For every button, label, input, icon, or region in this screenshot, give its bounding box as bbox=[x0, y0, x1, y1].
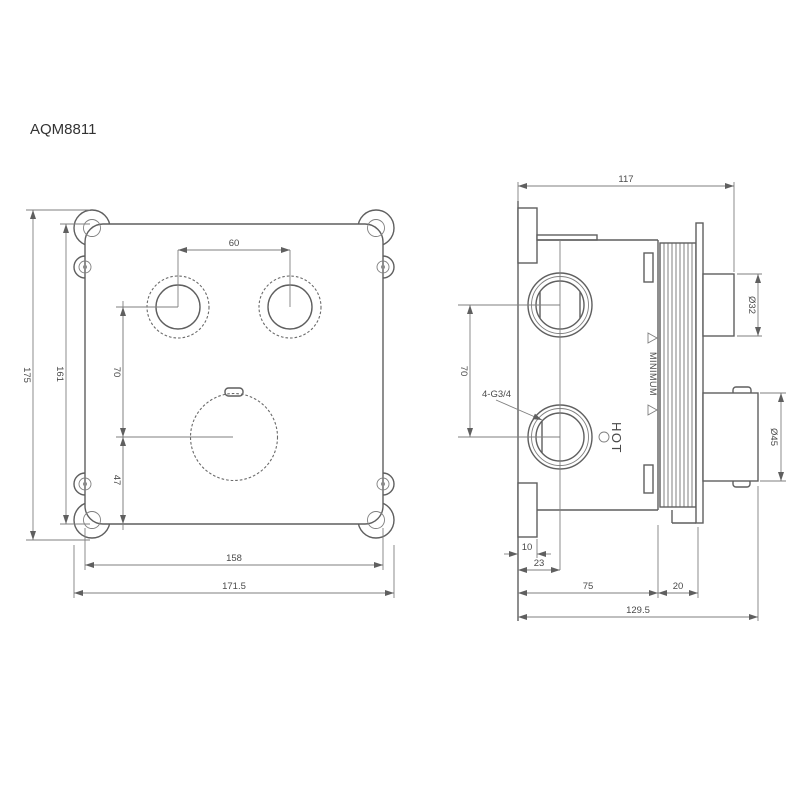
dim-label-23: 23 bbox=[534, 558, 545, 569]
dim-label-70: 70 bbox=[111, 367, 122, 378]
front-view: 60 70 47 161 175 bbox=[21, 210, 394, 598]
hot-indicator-dot bbox=[599, 432, 609, 442]
dim-label-10: 10 bbox=[522, 542, 533, 553]
dimension-large-knob-dia: Ø45 bbox=[760, 393, 786, 481]
dim-label-dia45: Ø45 bbox=[768, 428, 779, 446]
temp-knob-button bbox=[225, 388, 243, 396]
drawing-page: AQM8811 bbox=[0, 0, 800, 800]
thread-label: 4-G3/4 bbox=[482, 389, 511, 400]
technical-drawing: AQM8811 bbox=[0, 0, 800, 800]
dimension-overall-depth: 129.5 bbox=[518, 486, 758, 621]
dim-label-dia32: Ø32 bbox=[746, 296, 757, 314]
dim-label-75: 75 bbox=[583, 581, 594, 592]
dim-label-47: 47 bbox=[111, 475, 122, 486]
minimum-arrow-icon bbox=[648, 333, 657, 343]
dimension-port-center-depth: 23 bbox=[518, 558, 560, 570]
dimension-tab-depth: 10 bbox=[504, 539, 551, 558]
edge-lug-pin bbox=[83, 482, 87, 486]
dim-label-175: 175 bbox=[21, 367, 32, 383]
hot-label: HOT bbox=[609, 422, 624, 454]
small-knob-side bbox=[703, 274, 734, 336]
dimension-plate-width: 158 bbox=[85, 528, 383, 570]
temp-knob-side bbox=[703, 387, 758, 487]
mount-bracket-top bbox=[518, 208, 537, 263]
dim-label-70-side: 70 bbox=[458, 366, 469, 377]
minimum-label: MINIMUM bbox=[648, 352, 658, 396]
minimum-arrow-icon bbox=[648, 405, 657, 415]
trim-plate-edge bbox=[696, 223, 703, 523]
side-view: HOT MINIMUM 117 70 4-G3/4 1 bbox=[458, 174, 786, 621]
edge-lug-pin bbox=[381, 482, 385, 486]
dim-label-20: 20 bbox=[673, 581, 684, 592]
mount-bracket-bottom bbox=[518, 483, 537, 537]
dim-label-129-5: 129.5 bbox=[626, 605, 650, 616]
dim-label-158: 158 bbox=[226, 553, 242, 564]
body-slot-top bbox=[644, 253, 653, 282]
dimension-body-collar: 75 20 bbox=[518, 525, 698, 598]
threaded-collar bbox=[660, 243, 696, 507]
mount-rail bbox=[537, 235, 597, 240]
dimension-small-knob-dia: Ø32 bbox=[737, 274, 762, 336]
dim-label-60: 60 bbox=[229, 238, 240, 249]
model-number: AQM8811 bbox=[30, 121, 96, 138]
dim-label-161: 161 bbox=[54, 366, 65, 382]
body-slot-bottom bbox=[644, 465, 653, 493]
edge-lug-pin bbox=[83, 265, 87, 269]
trim-plate bbox=[85, 224, 383, 524]
edge-lug-pin bbox=[381, 265, 385, 269]
thread-callout: 4-G3/4 bbox=[482, 389, 542, 420]
dim-label-117: 117 bbox=[618, 174, 633, 185]
dim-label-171-5: 171.5 bbox=[222, 581, 246, 592]
